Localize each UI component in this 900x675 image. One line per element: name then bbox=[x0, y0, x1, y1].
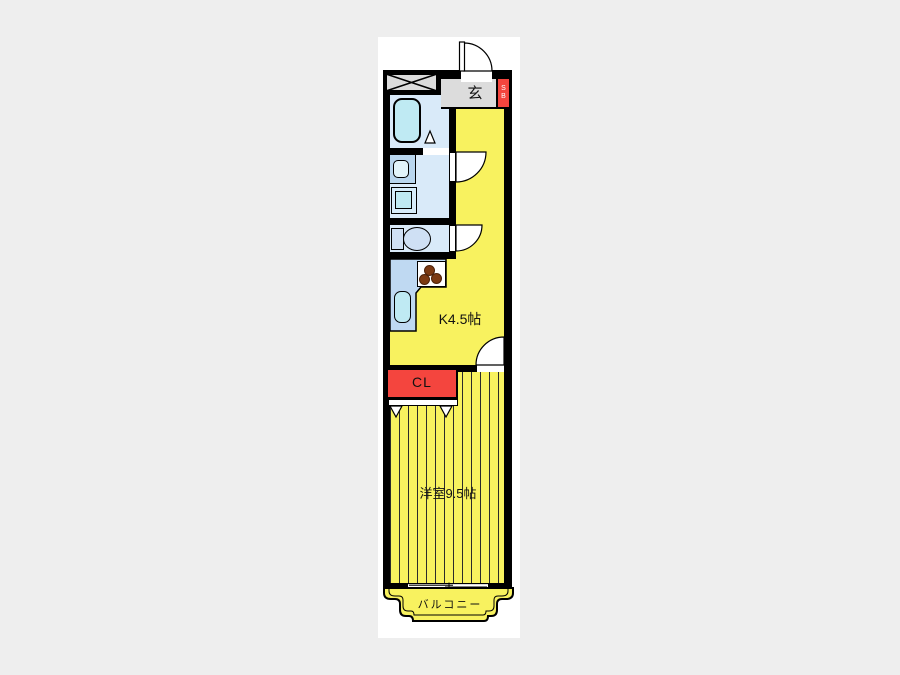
wall-outer-right bbox=[504, 70, 512, 589]
wall-toilet-kitchen bbox=[383, 252, 456, 259]
toilet-door-leaf bbox=[449, 225, 456, 252]
wall-room-bottom-left bbox=[383, 583, 408, 589]
entrance-door-sill bbox=[461, 70, 492, 82]
wall-room-bottom-right bbox=[488, 583, 512, 589]
closet-folding-door-track bbox=[388, 399, 458, 406]
washroom-door-leaf bbox=[449, 152, 456, 182]
stove-icon bbox=[417, 261, 446, 287]
kitchen-label: K4.5帖 bbox=[425, 309, 495, 329]
bathtub-icon bbox=[393, 98, 421, 143]
bathroom-door-opening bbox=[423, 148, 449, 155]
washbasin-bowl-icon bbox=[393, 160, 409, 178]
kitchen-sink-icon bbox=[394, 291, 411, 323]
room-door-threshold bbox=[477, 365, 504, 372]
washing-machine-icon bbox=[395, 191, 412, 209]
wall-washroom-toilet bbox=[383, 218, 456, 225]
shoe-box: S B bbox=[496, 77, 511, 109]
stove-burner-icon bbox=[431, 273, 442, 284]
balcony-label: バルコニー bbox=[406, 596, 494, 612]
sliding-window bbox=[408, 583, 488, 589]
western-room-label: 洋室9.5帖 bbox=[404, 483, 492, 502]
shoe-box-label-line2: B bbox=[498, 93, 509, 101]
wall-top-left-thick bbox=[383, 82, 443, 95]
stove-burner-icon bbox=[419, 274, 430, 285]
entrance-label: 玄 bbox=[460, 82, 490, 103]
shoe-box-label-line1: S bbox=[498, 85, 509, 93]
closet-label: CL bbox=[386, 374, 458, 390]
floorplan-page: S B bbox=[0, 0, 900, 675]
toilet-bowl-icon bbox=[403, 227, 431, 251]
